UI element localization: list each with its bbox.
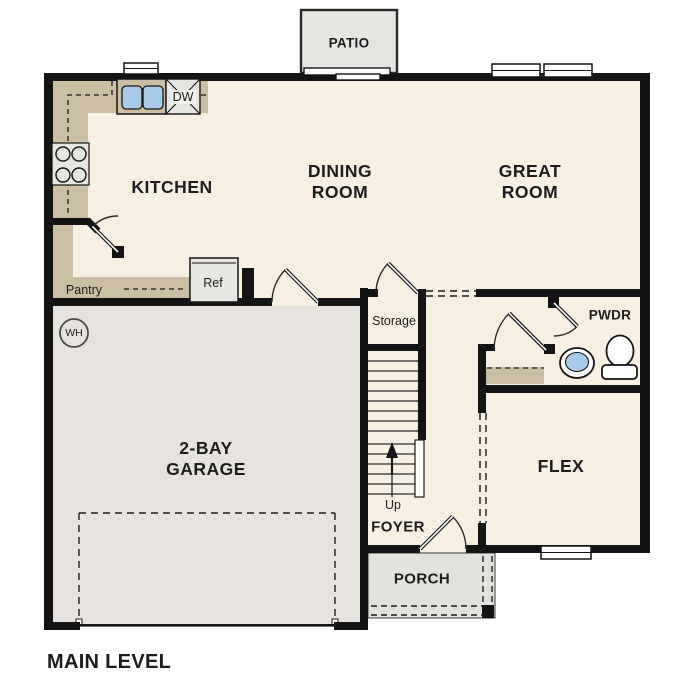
- garage-label-line2: GARAGE: [166, 459, 246, 479]
- great-room-label-line1: GREAT: [499, 161, 561, 181]
- porch-label: PORCH: [394, 571, 450, 588]
- great-room-label-line2: ROOM: [502, 182, 558, 202]
- kitchen-label: KITCHEN: [131, 177, 212, 197]
- wh-label: WH: [65, 327, 83, 339]
- garage-label-line1: 2-BAY: [179, 438, 232, 458]
- stair-railing: [415, 440, 424, 497]
- patio-label: PATIO: [329, 36, 370, 51]
- powder-sink: [560, 348, 594, 378]
- patio-slider-panel-2: [336, 74, 380, 80]
- floor-plan: PATIO KITCHEN DINING ROOM GREAT ROOM Pan…: [0, 0, 687, 687]
- up-label: Up: [385, 498, 401, 512]
- storage-label: Storage: [372, 314, 416, 328]
- flex-label: FLEX: [538, 456, 585, 476]
- pantry-label: Pantry: [66, 283, 103, 297]
- closet-shelf: [486, 367, 544, 384]
- dining-room-label-line2: ROOM: [312, 182, 368, 202]
- stove: [52, 143, 89, 185]
- ref-label: Ref: [203, 276, 223, 290]
- sink-basin-right: [143, 86, 163, 109]
- sink-basin-left: [122, 86, 142, 109]
- plan-title: MAIN LEVEL: [47, 651, 171, 673]
- foyer-label: FOYER: [371, 519, 425, 536]
- dining-room-label-line1: DINING: [308, 161, 372, 181]
- floor-plan-svg: PATIO KITCHEN DINING ROOM GREAT ROOM Pan…: [0, 0, 687, 687]
- porch-post: [482, 605, 494, 618]
- dw-label: DW: [173, 90, 194, 104]
- pwdr-label: PWDR: [589, 308, 631, 323]
